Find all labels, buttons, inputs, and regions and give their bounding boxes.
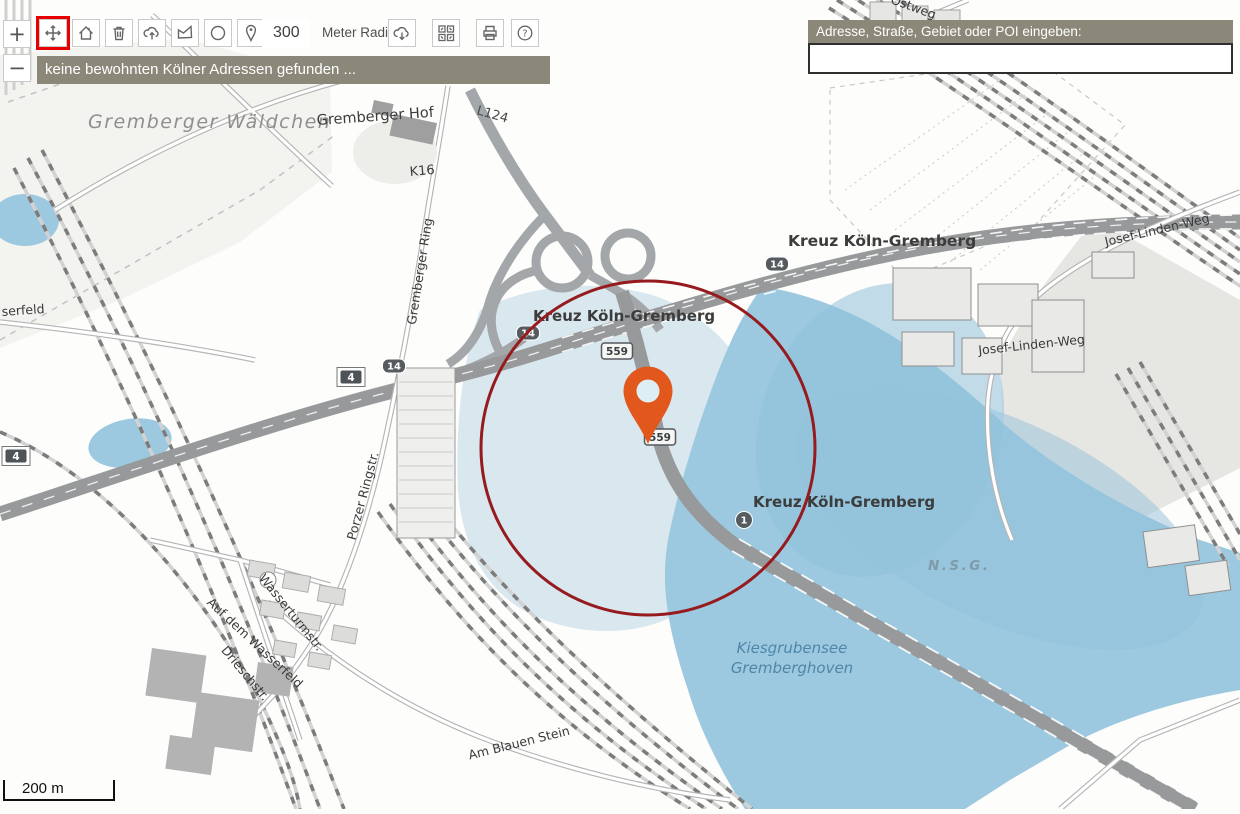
set-marker-button[interactable] — [237, 19, 265, 47]
printer-icon — [480, 23, 500, 43]
move-arrows-icon — [43, 23, 63, 43]
label-k16: K16 — [409, 163, 435, 180]
map-sections-button[interactable] — [432, 19, 460, 47]
search-panel: Adresse, Straße, Gebiet oder POI eingebe… — [808, 20, 1233, 74]
circle-icon — [208, 23, 228, 43]
badge-a4: 4 — [337, 368, 365, 387]
draw-circle-button[interactable] — [204, 19, 232, 47]
search-label: Adresse, Straße, Gebiet oder POI eingebe… — [808, 20, 1233, 43]
badge-14: 14 — [383, 359, 406, 373]
svg-text:?: ? — [522, 29, 527, 40]
print-button[interactable] — [476, 19, 504, 47]
help-icon: ? — [515, 23, 535, 43]
badge-559: 559 — [602, 343, 633, 359]
home-icon — [76, 23, 96, 43]
label-forest: Gremberger Wäldchen — [88, 111, 331, 133]
draw-polygon-button[interactable] — [171, 19, 199, 47]
cloud-upload-icon — [142, 23, 162, 43]
label-kreuz: Kreuz Köln-Gremberg — [533, 307, 715, 325]
badge-14: 14 — [766, 257, 789, 271]
svg-text:14: 14 — [770, 260, 784, 271]
status-message: keine bewohnten Kölner Adressen gefunden… — [37, 56, 550, 84]
trash-icon — [109, 23, 129, 43]
zoom-out-button[interactable]: − — [3, 54, 31, 82]
svg-text:1: 1 — [741, 516, 748, 527]
scale-bar-label: 200 m — [22, 780, 64, 797]
radius-input[interactable] — [262, 19, 310, 47]
help-button[interactable]: ? — [511, 19, 539, 47]
svg-text:4: 4 — [347, 372, 354, 384]
pan-tool-button[interactable] — [39, 19, 67, 47]
polygon-icon — [175, 23, 195, 43]
badge-a4: 4 — [2, 447, 30, 466]
cloud-download-icon — [392, 23, 412, 43]
download-button[interactable] — [388, 19, 416, 47]
map-pin-icon — [241, 23, 261, 43]
label-lake: Kiesgrubensee — [737, 639, 848, 657]
label-lake: Gremberghoven — [731, 659, 853, 677]
svg-text:559: 559 — [606, 346, 628, 358]
tiles-grid-icon — [436, 23, 456, 43]
badge-a1: 1 — [736, 512, 753, 529]
svg-text:4: 4 — [12, 451, 19, 463]
scale-bar: 200 m — [3, 780, 115, 801]
label-street: serfeld — [1, 301, 45, 319]
label-kreuz: Kreuz Köln-Gremberg — [753, 493, 935, 511]
delete-button[interactable] — [105, 19, 133, 47]
label-kreuz: Kreuz Köln-Gremberg — [788, 232, 976, 250]
svg-text:14: 14 — [387, 362, 401, 373]
basemap: 4 4 14 14 14 559 559 1 — [0, 0, 1240, 809]
home-extent-button[interactable] — [72, 19, 100, 47]
search-input[interactable] — [808, 43, 1233, 74]
label-nsg: N.S.G. — [928, 558, 991, 574]
upload-button[interactable] — [138, 19, 166, 47]
zoom-in-button[interactable]: + — [3, 20, 31, 48]
map-canvas[interactable]: 4 4 14 14 14 559 559 1 — [0, 0, 1240, 809]
